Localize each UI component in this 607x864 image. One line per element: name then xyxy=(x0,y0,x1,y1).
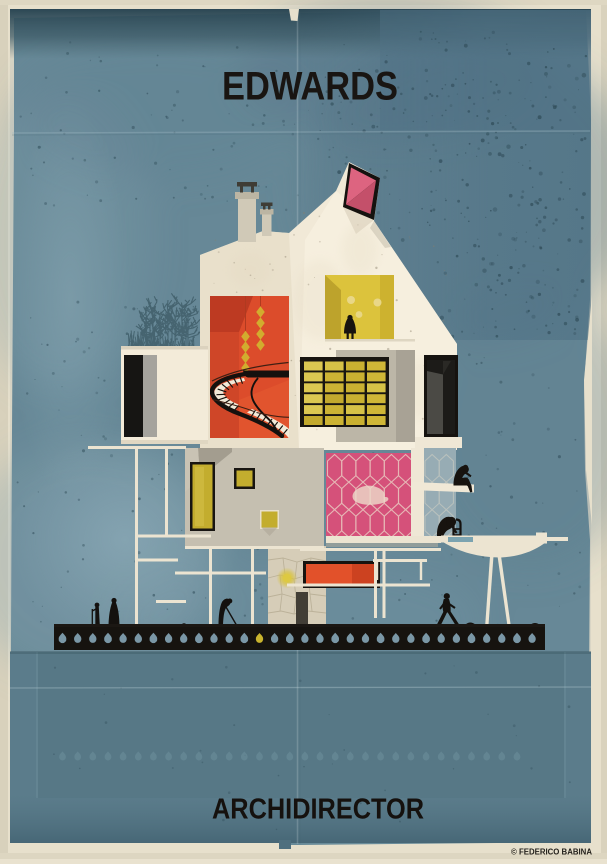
svg-text:© FEDERICO BABINA: © FEDERICO BABINA xyxy=(511,848,592,857)
svg-text:ARCHIDIRECTOR: ARCHIDIRECTOR xyxy=(212,794,424,826)
svg-text:EDWARDS: EDWARDS xyxy=(222,65,398,109)
